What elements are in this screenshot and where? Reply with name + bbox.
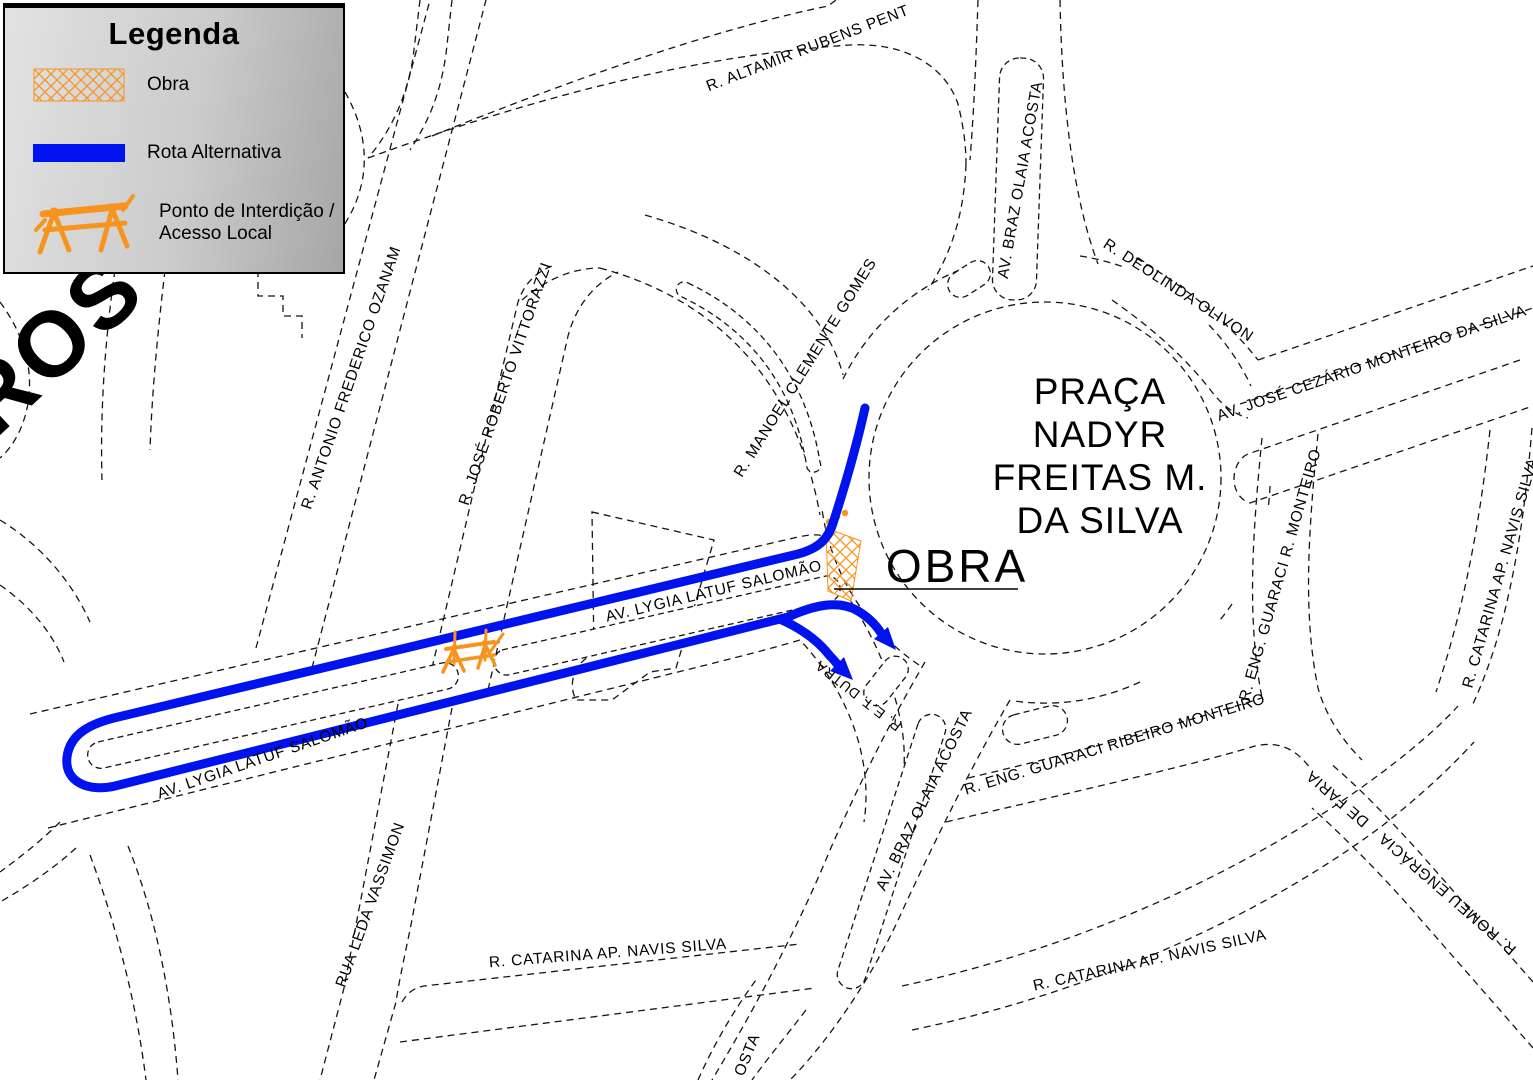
- legend-item-rota: Rota Alternativa: [33, 142, 281, 164]
- detour-map: ROS PRAÇA NADYR FREITAS M. DA SILVA OBRA…: [0, 0, 1533, 1080]
- plaza-name-line3: FREITAS M.: [993, 456, 1208, 499]
- legend-rota-label: Rota Alternativa: [147, 142, 281, 164]
- plaza-name-line2: NADYR: [993, 413, 1208, 456]
- legend-title: Legenda: [5, 16, 343, 52]
- obra-callout-label: OBRA: [886, 539, 1028, 593]
- obra-hatch-swatch: [33, 68, 125, 102]
- barrier-icon: [33, 188, 137, 258]
- legend-ponto-line2: Acesso Local: [159, 223, 334, 245]
- legend-ponto-line1: Ponto de Interdição /: [159, 201, 334, 223]
- legend-obra-label: Obra: [147, 74, 189, 96]
- obra-hatch-area: [826, 528, 861, 601]
- rota-alternativa-swatch: [33, 144, 125, 162]
- legend-item-obra: Obra: [33, 68, 189, 102]
- plaza-name-line1: PRAÇA: [993, 370, 1208, 413]
- plaza-name: PRAÇA NADYR FREITAS M. DA SILVA: [993, 370, 1208, 542]
- legend-item-ponto: Ponto de Interdição / Acesso Local: [33, 188, 334, 258]
- route-branch-dutra: [782, 620, 837, 664]
- legend-ponto-label: Ponto de Interdição / Acesso Local: [159, 201, 334, 245]
- plaza-name-line4: DA SILVA: [993, 499, 1208, 542]
- legend-panel: Legenda Obra Rota Alternativa: [3, 3, 345, 274]
